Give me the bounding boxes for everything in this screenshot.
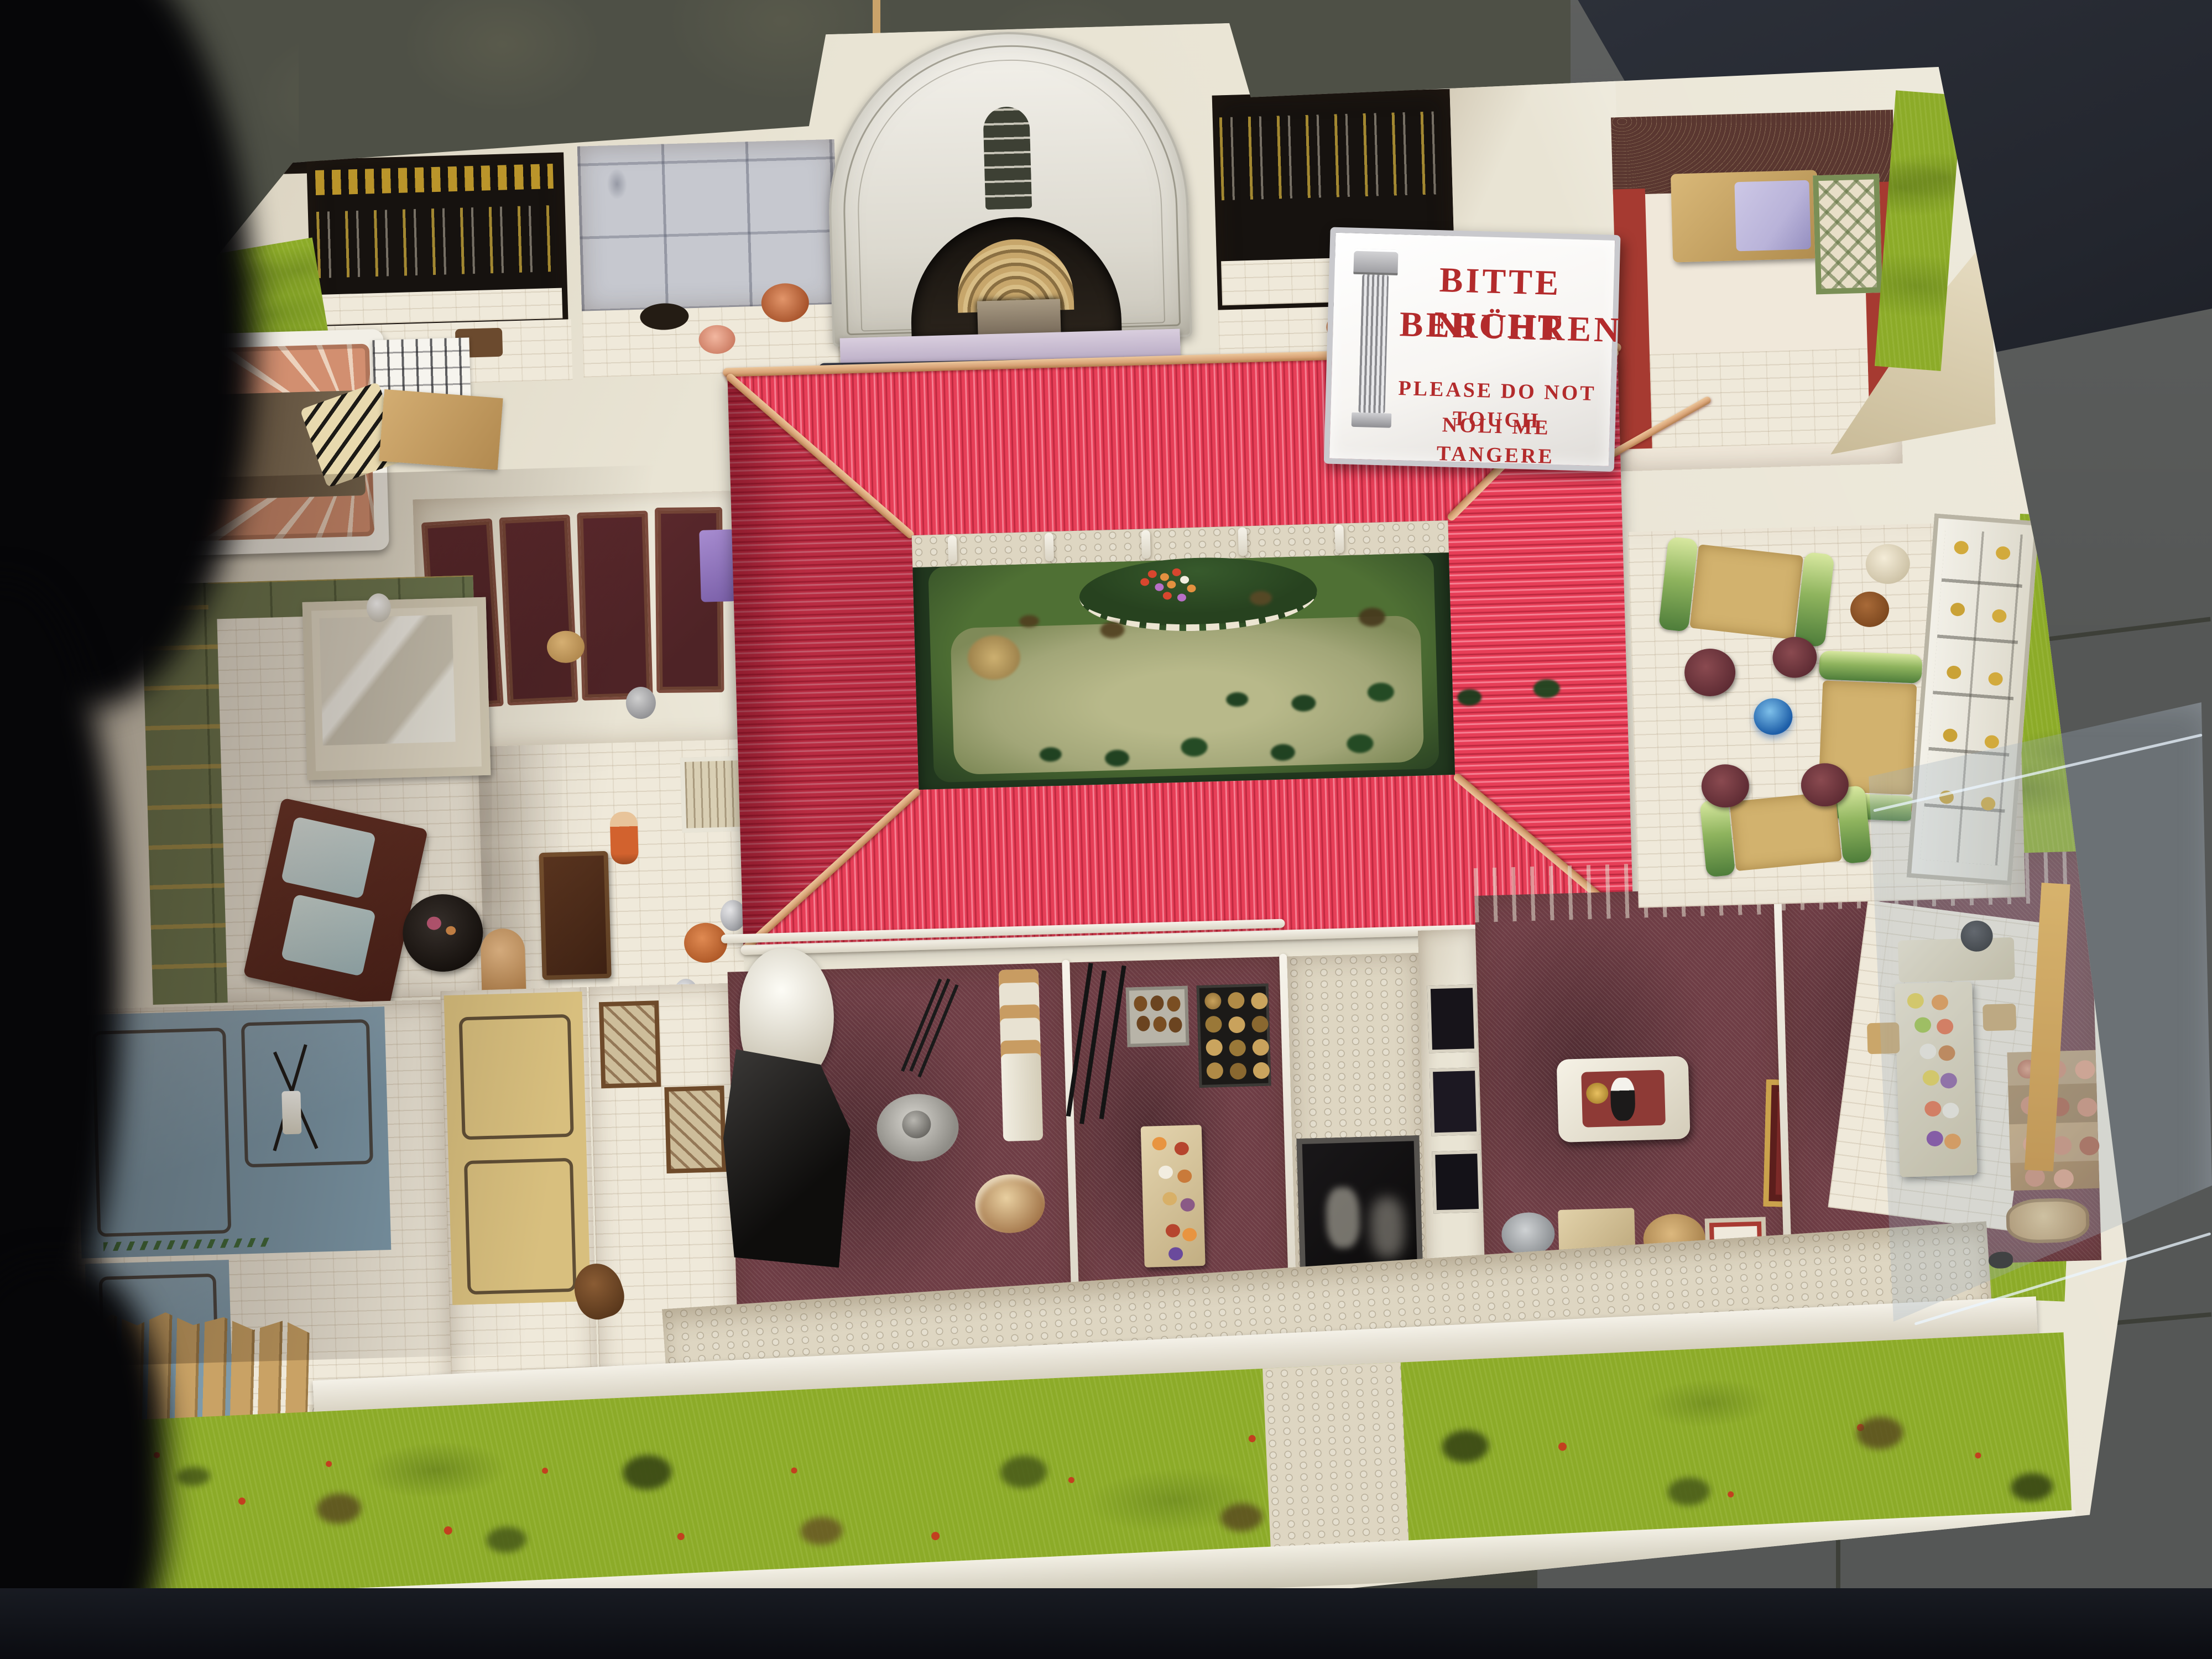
black-gold-fresco-room	[306, 152, 568, 328]
fresco-figures	[1219, 111, 1446, 200]
dining-room	[1474, 888, 1788, 1277]
purple-cloth	[699, 529, 737, 602]
gold-figures	[316, 205, 556, 278]
blue-glass-bowl	[1753, 698, 1793, 735]
server-figurine	[1610, 1077, 1636, 1121]
couch-bolster	[1819, 650, 1923, 684]
food-items	[1152, 1137, 1167, 1151]
framed-mosaic	[1432, 1150, 1482, 1213]
figs	[1134, 996, 1147, 1012]
brick-base	[316, 288, 562, 325]
pink-dish	[698, 325, 735, 354]
gold-scrolls	[1954, 540, 1969, 555]
bed	[1671, 170, 1819, 262]
framed-mosaic	[1427, 984, 1478, 1053]
sign-line-la: NOLI ME TANGERE	[1390, 409, 1602, 473]
colonnade-column	[1238, 527, 1247, 556]
cardboard-flap	[379, 389, 503, 470]
wire-tripod	[909, 978, 950, 1072]
mosaic-figures	[1326, 1187, 1360, 1249]
pedestal-table	[1684, 648, 1736, 697]
cream-pedestal	[1865, 544, 1911, 585]
lawn-bushes	[176, 1467, 210, 1487]
colonnade-column	[1045, 533, 1054, 561]
do-not-touch-sign: BITTE NICHT BERÜHREN PLEASE DO NOT TOUCH…	[1324, 227, 1621, 472]
round-table-brown	[1850, 591, 1890, 628]
black-rock-oven	[721, 1046, 854, 1271]
couch-mattress	[1689, 544, 1803, 639]
orange-table	[684, 922, 728, 963]
garden-courtyard	[912, 520, 1455, 790]
lavender-blanket	[1734, 180, 1811, 252]
pedestal-table	[1772, 637, 1817, 679]
dining-table	[1557, 1056, 1691, 1142]
column-shaft	[1358, 274, 1389, 413]
sign-line-de-2: BERÜHREN	[1399, 302, 1599, 352]
grey-platter	[1501, 1212, 1555, 1256]
bread-bowl	[974, 1173, 1046, 1234]
dark-bottom-band	[0, 1588, 2212, 1659]
engraved-fresco-room	[577, 139, 839, 312]
colonnade-column	[948, 535, 957, 564]
food-table	[1141, 1125, 1206, 1267]
column-base	[1352, 413, 1392, 428]
terracotta-plate	[761, 283, 810, 322]
garden-path	[1262, 1363, 1409, 1551]
framed-mosaic	[1430, 1067, 1480, 1136]
bread-board	[999, 969, 1044, 1141]
grindstone-table	[876, 1093, 959, 1162]
colonnade-column	[1334, 524, 1344, 553]
pastries	[1204, 993, 1222, 1010]
couch	[1658, 536, 1834, 648]
colonnade-column	[1141, 530, 1151, 559]
dark-basket	[640, 302, 689, 330]
fig-tray	[1126, 986, 1190, 1047]
pastry-tray	[1197, 983, 1271, 1088]
lattice-window	[983, 106, 1032, 210]
garden-moss-lawn	[950, 615, 1424, 775]
museum-photo: BITTE NICHT BERÜHREN PLEASE DO NOT TOUCH…	[0, 0, 2212, 1659]
column-capital	[1353, 249, 1398, 275]
gold-frieze	[315, 164, 554, 195]
green-lattice-screen	[1813, 174, 1882, 294]
kettle	[902, 1110, 931, 1139]
bedroom-floor	[1650, 348, 1870, 448]
